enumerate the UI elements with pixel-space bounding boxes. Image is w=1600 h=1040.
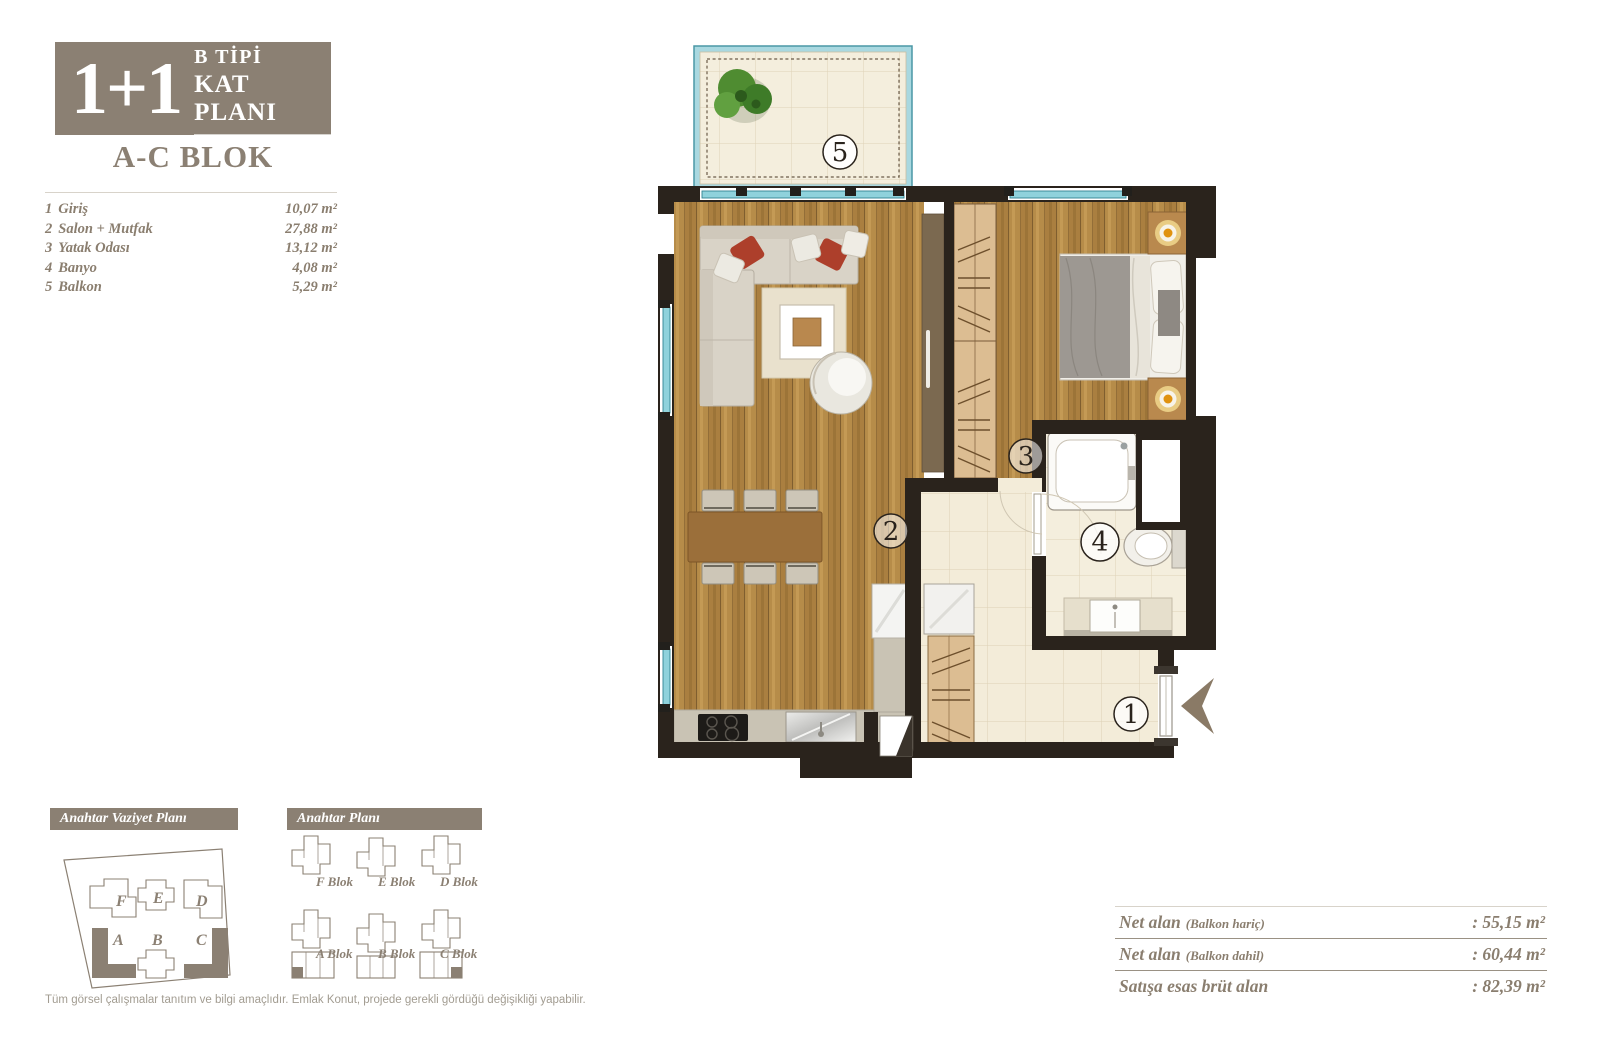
- unit-type: 1+1: [71, 52, 181, 126]
- living-window-lower: [658, 642, 672, 712]
- nightstand: [1148, 378, 1188, 420]
- key-plan-label: C Blok: [440, 946, 478, 961]
- toilet: [1124, 524, 1186, 568]
- room-number-1: 1: [1114, 697, 1148, 731]
- title-badge: 1+1 B TİPİ KAT PLANI: [55, 42, 331, 135]
- room-no: 3: [45, 240, 52, 256]
- room-row: 4Banyo 4,08 m²: [45, 259, 337, 279]
- cooktop: [698, 714, 748, 741]
- key-plan: F Blok E Blok D Blok A Blok B Blok C Blo…: [287, 832, 487, 992]
- balcony-slider-window: [700, 186, 906, 200]
- key-plan-label: E Blok: [377, 874, 416, 889]
- svg-text:1: 1: [1123, 700, 1140, 730]
- svg-text:5: 5: [832, 138, 849, 168]
- summary-label: Net alan: [1119, 944, 1181, 964]
- site-block-label: C: [196, 932, 207, 949]
- floor-plan: 5 2 3 4 1: [640, 28, 1280, 798]
- room-number-3: 3: [1009, 439, 1043, 473]
- site-block-label: F: [115, 893, 127, 910]
- counter-strip: [874, 638, 906, 712]
- disclaimer-text: Tüm görsel çalışmalar tanıtım ve bilgi a…: [45, 994, 586, 1006]
- coffee-table: [780, 305, 834, 359]
- room-area: 10,07 m²: [285, 200, 337, 220]
- summary-label: Net alan: [1119, 912, 1181, 932]
- room-number-5: 5: [823, 135, 857, 169]
- left-wall-niche: [658, 214, 674, 254]
- summary-label: Satışa esas brüt alan: [1119, 976, 1268, 996]
- room-number-2: 2: [874, 514, 908, 548]
- room-area: 5,29 m²: [292, 278, 337, 298]
- room-name: Salon + Mutfak: [58, 221, 152, 237]
- plan-type-line2: KAT PLANI: [194, 71, 331, 135]
- room-name: Giriş: [58, 201, 88, 217]
- armchair: [810, 352, 872, 414]
- living-window-upper: [658, 300, 672, 420]
- key-plan-label: F Blok: [315, 874, 353, 889]
- key-plan-panel: Anahtar Planı: [287, 808, 482, 830]
- entrance-arrow-icon: [1181, 678, 1214, 734]
- room-name: Balkon: [58, 279, 102, 295]
- summary-row: Net alan(Balkon dahil) : 60,44 m²: [1115, 939, 1547, 971]
- room-name: Yatak Odası: [58, 240, 130, 256]
- key-site-plan: F E D A B C: [50, 832, 240, 994]
- summary-value: : 55,15 m²: [1472, 912, 1545, 933]
- bed: [1060, 254, 1186, 380]
- svg-text:4: 4: [1091, 527, 1108, 558]
- key-plan-title: Anahtar Planı: [287, 808, 482, 830]
- room-row: 2Salon + Mutfak 27,88 m²: [45, 220, 337, 240]
- floor-plan-page: 1+1 B TİPİ KAT PLANI A-C BLOK 1Giriş 10,…: [0, 0, 1600, 1040]
- bathtub: [1048, 432, 1136, 510]
- washing-machine: [924, 584, 974, 634]
- fridge: [872, 584, 908, 638]
- key-plan-label: B Blok: [377, 946, 416, 961]
- dining-table: [688, 490, 822, 584]
- plan-type-line1: B TİPİ: [194, 46, 331, 69]
- key-plan-label: D Blok: [439, 874, 478, 889]
- key-plan-label: A Blok: [315, 946, 353, 961]
- bedroom-window: [1004, 186, 1132, 200]
- plan-type: B TİPİ KAT PLANI: [194, 46, 331, 135]
- site-block-label: D: [195, 893, 208, 910]
- site-block-label: E: [152, 890, 164, 907]
- sliding-panel: [922, 214, 944, 472]
- summary-row: Net alan(Balkon hariç) : 55,15 m²: [1115, 906, 1547, 939]
- hallway-area: [924, 584, 974, 756]
- room-row: 1Giriş 10,07 m²: [45, 200, 337, 220]
- site-block-label: A: [112, 932, 124, 949]
- key-site-plan-panel: Anahtar Vaziyet Planı: [50, 808, 238, 830]
- room-no: 2: [45, 221, 52, 237]
- summary-row: Satışa esas brüt alan : 82,39 m²: [1115, 971, 1547, 1002]
- svg-text:3: 3: [1018, 442, 1035, 472]
- room-area: 4,08 m²: [292, 259, 337, 279]
- room-no: 1: [45, 201, 52, 217]
- wall-recess: [1196, 258, 1216, 416]
- key-site-plan-title: Anahtar Vaziyet Planı: [50, 808, 238, 830]
- svg-text:2: 2: [883, 517, 900, 547]
- balcony-area: [694, 46, 912, 188]
- room-area: 13,12 m²: [285, 239, 337, 259]
- room-area: 27,88 m²: [285, 220, 337, 240]
- nightstand: [1148, 212, 1188, 254]
- room-no: 4: [45, 260, 52, 276]
- block-title: A-C BLOK: [55, 139, 331, 175]
- hall-cabinet: [928, 636, 974, 756]
- summary-qualifier: (Balkon dahil): [1186, 948, 1264, 963]
- site-block-label: B: [151, 932, 163, 949]
- room-area-list: 1Giriş 10,07 m² 2Salon + Mutfak 27,88 m²…: [45, 192, 337, 298]
- summary-qualifier: (Balkon hariç): [1186, 916, 1265, 931]
- summary-value: : 82,39 m²: [1472, 976, 1545, 997]
- shaft-niche: [1142, 440, 1180, 522]
- room-row: 5Balkon 5,29 m²: [45, 278, 337, 298]
- wardrobe: [954, 204, 996, 478]
- room-name: Banyo: [58, 260, 97, 276]
- unit-marker: [451, 967, 462, 978]
- room-row: 3Yatak Odası 13,12 m²: [45, 239, 337, 259]
- area-summary: Net alan(Balkon hariç) : 55,15 m² Net al…: [1115, 906, 1547, 1002]
- bathroom-sink: [1064, 598, 1172, 636]
- unit-marker: [292, 967, 303, 978]
- summary-value: : 60,44 m²: [1472, 944, 1545, 965]
- room-number-4: 4: [1081, 523, 1119, 561]
- room-no: 5: [45, 279, 52, 295]
